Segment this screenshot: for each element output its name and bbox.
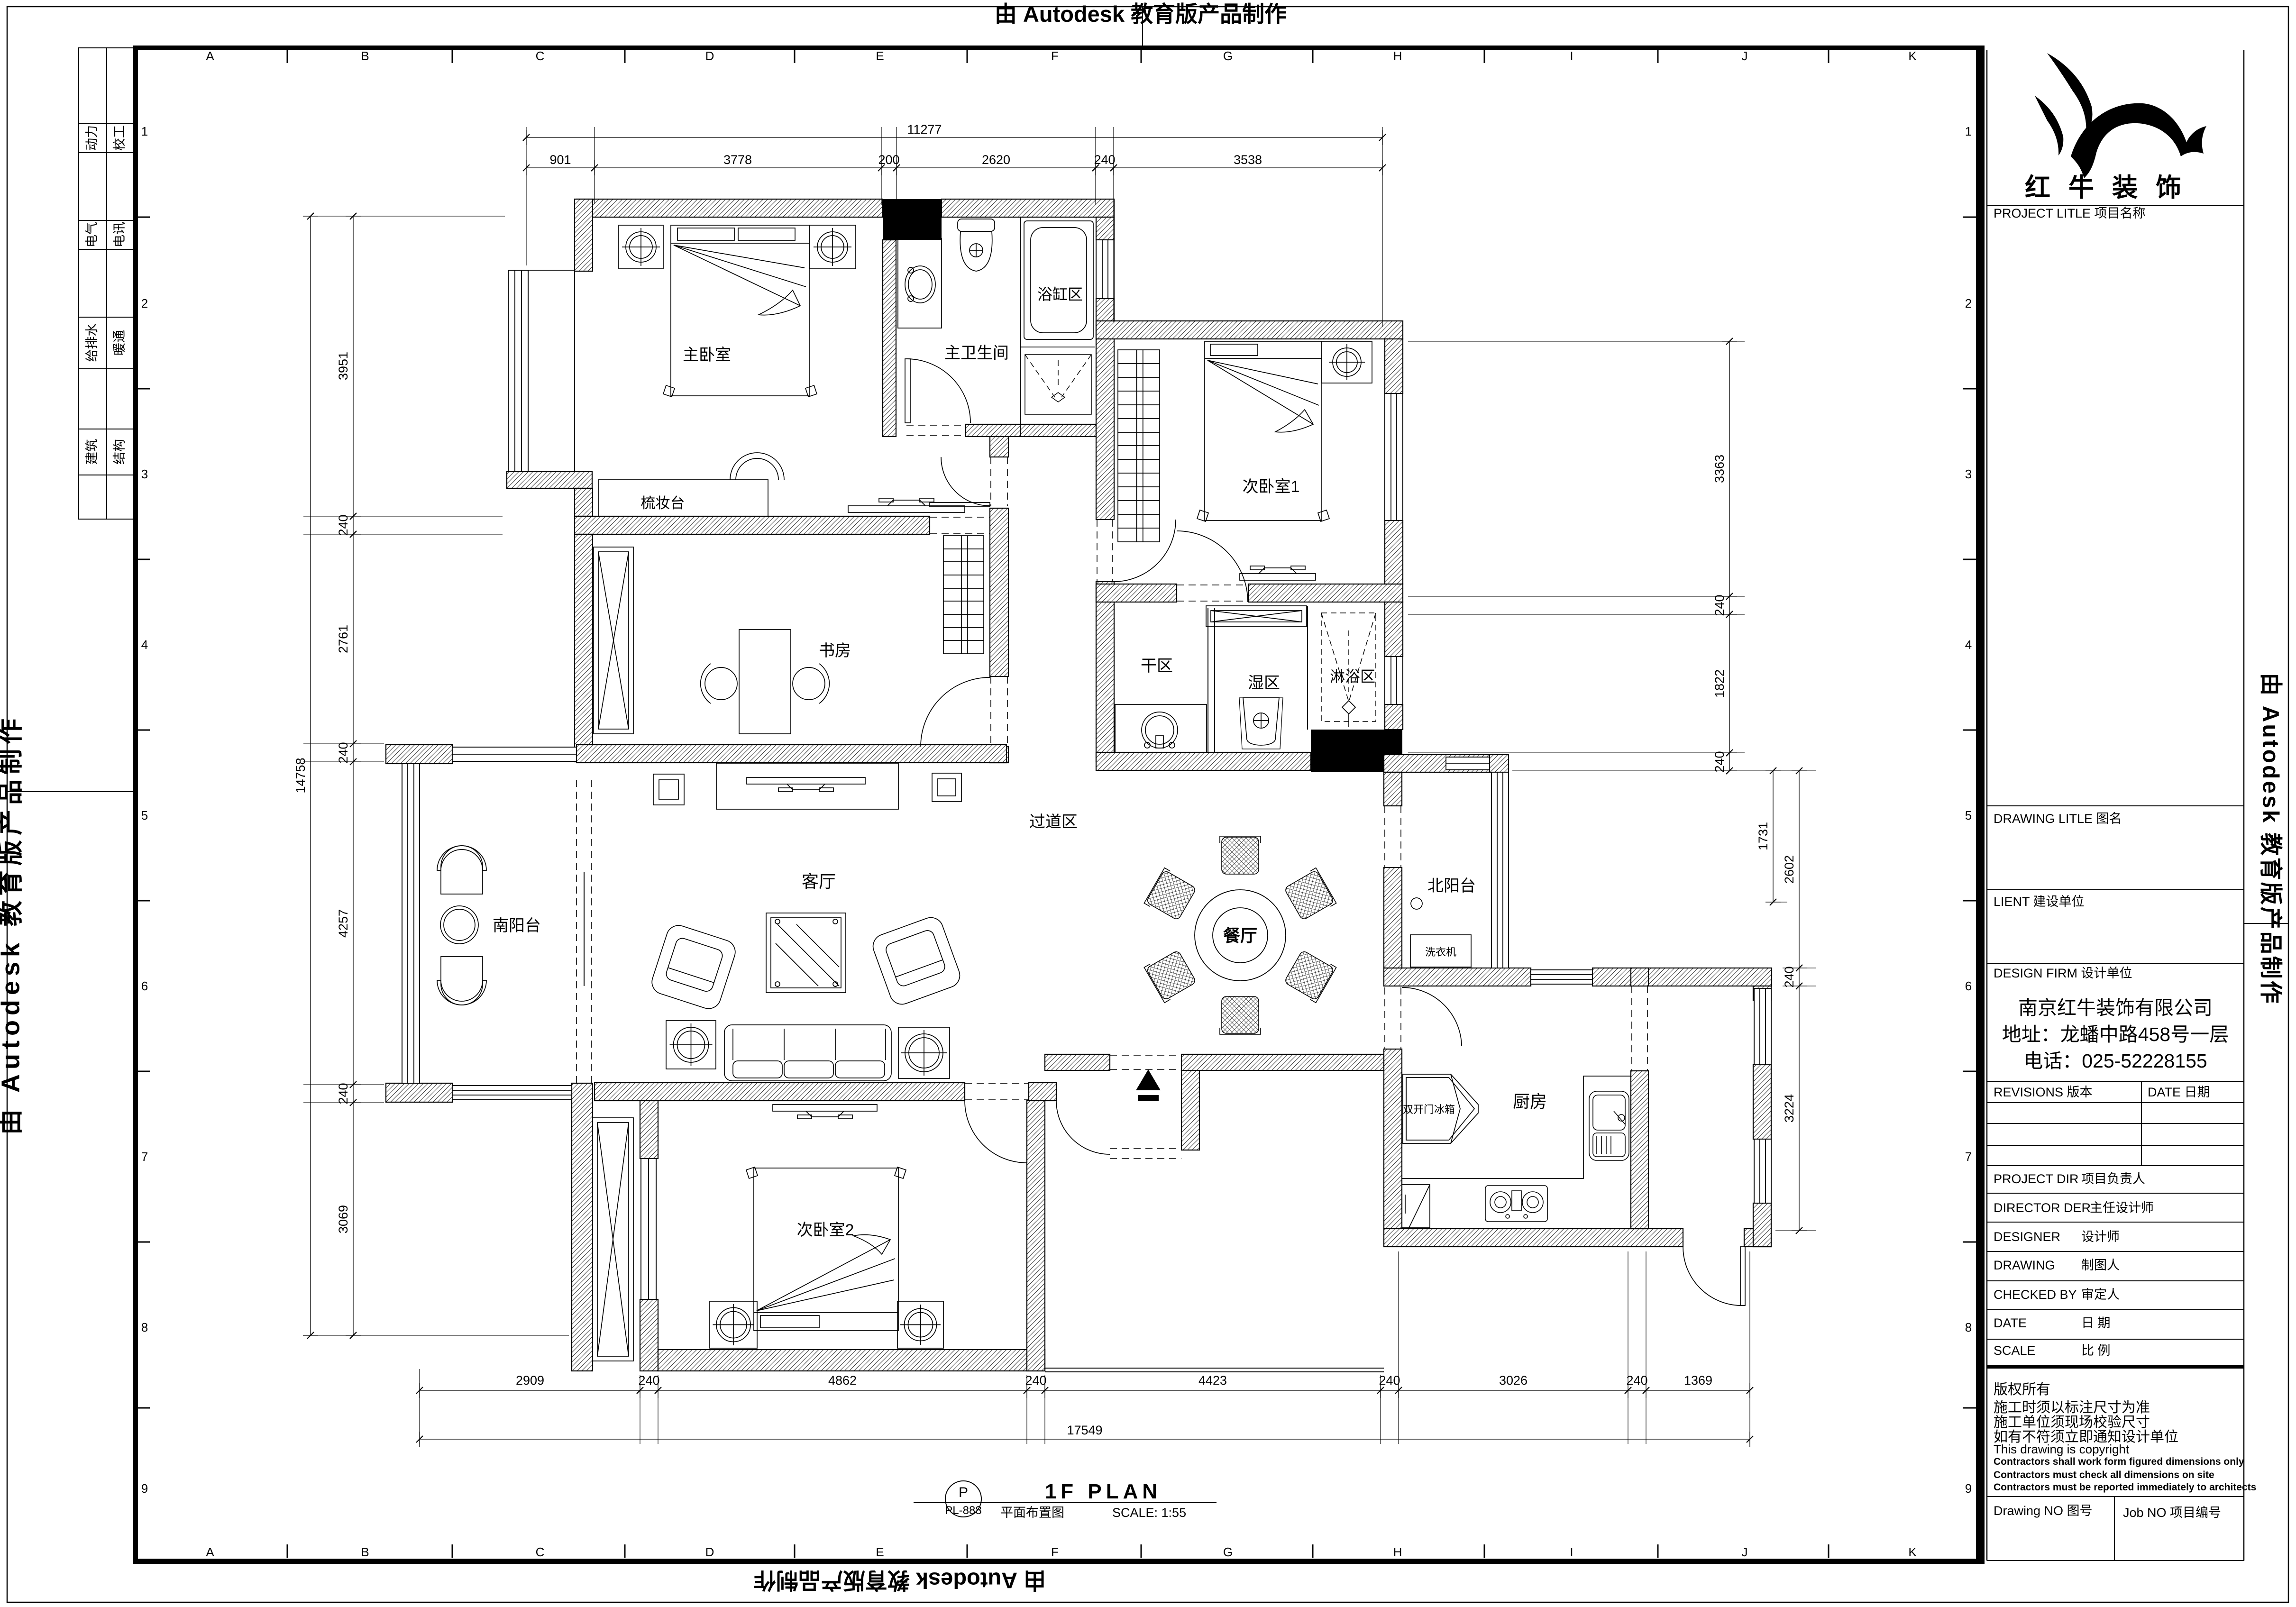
svg-text:淋浴区: 淋浴区 — [1330, 668, 1375, 685]
svg-text:F: F — [1051, 49, 1059, 63]
svg-text:结构: 结构 — [112, 439, 127, 465]
svg-text:DATE 日期: DATE 日期 — [2148, 1085, 2210, 1099]
svg-text:D: D — [705, 49, 714, 63]
svg-text:餐厅: 餐厅 — [1223, 926, 1257, 945]
svg-text:项目负责人: 项目负责人 — [2081, 1172, 2145, 1186]
svg-text:次卧室2: 次卧室2 — [797, 1221, 854, 1239]
svg-text:审定人: 审定人 — [2081, 1287, 2120, 1302]
svg-text:DESIGN FIRM 设计单位: DESIGN FIRM 设计单位 — [1994, 966, 2132, 980]
svg-text:浴缸区: 浴缸区 — [1037, 286, 1083, 303]
svg-text:5: 5 — [1965, 808, 1972, 822]
svg-text:Drawing NO 图号: Drawing NO 图号 — [1994, 1504, 2093, 1518]
svg-text:电讯: 电讯 — [112, 222, 127, 247]
svg-text:K: K — [1908, 49, 1917, 63]
svg-text:240: 240 — [336, 514, 350, 536]
svg-text:E: E — [876, 49, 884, 63]
svg-text:H: H — [1393, 1545, 1402, 1559]
svg-text:Contractors must check all dim: Contractors must check all dimensions on… — [1994, 1470, 2214, 1480]
svg-text:施工时须以标注尺寸为准: 施工时须以标注尺寸为准 — [1994, 1400, 2150, 1415]
svg-text:制图人: 制图人 — [2081, 1258, 2120, 1272]
svg-text:比 例: 比 例 — [2081, 1343, 2111, 1358]
svg-text:1: 1 — [141, 124, 148, 138]
svg-text:由 Autodesk 教育版产品制作: 由 Autodesk 教育版产品制作 — [2258, 673, 2283, 1005]
svg-text:4862: 4862 — [828, 1373, 857, 1388]
svg-text:主任设计师: 主任设计师 — [2090, 1201, 2154, 1215]
svg-text:240: 240 — [336, 1083, 350, 1104]
svg-text:G: G — [1223, 1545, 1233, 1559]
svg-text:Contractors must be reported i: Contractors must be reported immediately… — [1994, 1482, 2256, 1493]
svg-text:3538: 3538 — [1234, 153, 1262, 167]
svg-text:1: 1 — [1965, 124, 1972, 138]
svg-text:17549: 17549 — [1067, 1423, 1102, 1437]
svg-text:8: 8 — [1965, 1320, 1972, 1334]
svg-text:9: 9 — [1965, 1481, 1972, 1496]
svg-text:B: B — [361, 49, 369, 63]
svg-text:P: P — [959, 1485, 968, 1500]
svg-text:F: F — [1051, 1545, 1059, 1559]
svg-text:4423: 4423 — [1198, 1373, 1227, 1388]
svg-text:2: 2 — [141, 296, 148, 310]
svg-text:客厅: 客厅 — [802, 872, 836, 891]
svg-text:14758: 14758 — [293, 758, 308, 793]
svg-text:LIENT 建设单位: LIENT 建设单位 — [1994, 895, 2085, 909]
svg-text:4257: 4257 — [336, 909, 350, 938]
svg-text:PROJECT DIR: PROJECT DIR — [1994, 1172, 2079, 1186]
svg-text:REVISIONS 版本: REVISIONS 版本 — [1994, 1085, 2093, 1099]
svg-text:1822: 1822 — [1712, 669, 1727, 698]
svg-text:设计师: 设计师 — [2081, 1230, 2120, 1244]
svg-text:E: E — [876, 1545, 884, 1559]
svg-text:H: H — [1393, 49, 1402, 63]
svg-text:This drawing is copyright: This drawing is copyright — [1994, 1442, 2130, 1456]
svg-text:南阳台: 南阳台 — [493, 917, 541, 935]
svg-text:北阳台: 北阳台 — [1427, 877, 1476, 895]
svg-text:1F PLAN: 1F PLAN — [1045, 1480, 1162, 1503]
svg-text:240: 240 — [1025, 1373, 1046, 1388]
svg-text:6: 6 — [1965, 979, 1972, 993]
svg-text:Job NO 项目编号: Job NO 项目编号 — [2123, 1506, 2221, 1520]
svg-text:DRAWING LITLE 图名: DRAWING LITLE 图名 — [1994, 812, 2122, 826]
svg-text:PL-888: PL-888 — [945, 1504, 981, 1517]
svg-text:南京红牛装饰有限公司: 南京红牛装饰有限公司 — [2018, 997, 2213, 1019]
svg-text:主卫生间: 主卫生间 — [944, 344, 1009, 362]
svg-text:2620: 2620 — [982, 153, 1010, 167]
svg-text:校工: 校工 — [112, 125, 127, 151]
svg-text:8: 8 — [141, 1320, 148, 1334]
svg-text:给排水: 给排水 — [85, 324, 99, 362]
svg-text:2602: 2602 — [1782, 855, 1796, 884]
svg-text:2909: 2909 — [516, 1373, 544, 1388]
svg-text:G: G — [1223, 49, 1233, 63]
svg-text:7: 7 — [141, 1150, 148, 1164]
svg-text:3778: 3778 — [723, 153, 752, 167]
svg-text:厨房: 厨房 — [1513, 1092, 1547, 1111]
svg-text:2: 2 — [1965, 296, 1972, 310]
svg-text:平面布置图: 平面布置图 — [1000, 1506, 1064, 1520]
svg-text:书房: 书房 — [819, 642, 851, 660]
svg-text:J: J — [1742, 49, 1748, 63]
svg-text:3069: 3069 — [336, 1205, 350, 1233]
svg-text:D: D — [705, 1545, 714, 1559]
svg-text:240: 240 — [1712, 751, 1727, 772]
svg-text:3224: 3224 — [1782, 1094, 1796, 1123]
svg-text:4: 4 — [1965, 638, 1972, 652]
svg-text:过道区: 过道区 — [1029, 813, 1078, 831]
svg-text:动力: 动力 — [85, 125, 99, 151]
svg-text:双开门冰箱: 双开门冰箱 — [1403, 1104, 1455, 1115]
svg-text:240: 240 — [1094, 153, 1115, 167]
svg-text:日 期: 日 期 — [2081, 1316, 2111, 1330]
svg-text:1731: 1731 — [1756, 822, 1770, 850]
svg-text:1369: 1369 — [1684, 1373, 1712, 1388]
svg-text:暖通: 暖通 — [112, 330, 127, 356]
svg-text:版权所有: 版权所有 — [1994, 1382, 2050, 1397]
svg-text:C: C — [536, 49, 545, 63]
svg-text:11277: 11277 — [907, 122, 942, 137]
svg-text:C: C — [536, 1545, 545, 1559]
svg-text:240: 240 — [638, 1373, 659, 1388]
svg-text:电气: 电气 — [85, 222, 99, 247]
svg-text:由 Autodesk 教育版产品制作: 由 Autodesk 教育版产品制作 — [0, 714, 25, 1135]
svg-text:由 Autodesk 教育版产品制作: 由 Autodesk 教育版产品制作 — [754, 1568, 1046, 1593]
svg-text:3363: 3363 — [1712, 455, 1727, 483]
svg-text:K: K — [1908, 1545, 1917, 1559]
svg-text:J: J — [1742, 1545, 1748, 1559]
svg-text:电话：025-52228155: 电话：025-52228155 — [2023, 1050, 2207, 1072]
svg-text:901: 901 — [549, 153, 571, 167]
svg-text:由 Autodesk 教育版产品制作: 由 Autodesk 教育版产品制作 — [995, 1, 1287, 27]
svg-text:Contractors shall work form fi: Contractors shall work form figured dime… — [1994, 1456, 2244, 1467]
svg-text:梳妆台: 梳妆台 — [641, 495, 685, 511]
svg-text:A: A — [206, 49, 214, 63]
svg-text:湿区: 湿区 — [1248, 674, 1280, 692]
svg-text:PROJECT LITLE 项目名称: PROJECT LITLE 项目名称 — [1994, 206, 2146, 220]
svg-text:3026: 3026 — [1499, 1373, 1528, 1388]
svg-text:4: 4 — [141, 638, 148, 652]
svg-text:主卧室: 主卧室 — [683, 346, 731, 364]
svg-text:240: 240 — [1712, 594, 1727, 616]
svg-text:红牛装饰: 红牛装饰 — [2025, 173, 2199, 202]
svg-text:SCALE: 1:55: SCALE: 1:55 — [1112, 1506, 1186, 1520]
svg-text:I: I — [1570, 1545, 1573, 1559]
svg-text:建筑: 建筑 — [85, 439, 99, 465]
svg-text:DESIGNER: DESIGNER — [1994, 1230, 2060, 1244]
svg-text:施工单位须现场校验尺寸: 施工单位须现场校验尺寸 — [1994, 1415, 2150, 1430]
svg-text:干区: 干区 — [1141, 657, 1173, 675]
svg-text:地址：龙蟠中路458号一层: 地址：龙蟠中路458号一层 — [2002, 1023, 2229, 1045]
svg-text:DIRECTOR DER: DIRECTOR DER — [1994, 1201, 2091, 1215]
svg-text:B: B — [361, 1545, 369, 1559]
svg-text:3951: 3951 — [336, 352, 350, 380]
svg-text:240: 240 — [1379, 1373, 1400, 1388]
svg-text:2761: 2761 — [336, 625, 350, 653]
svg-text:240: 240 — [1626, 1373, 1647, 1388]
svg-text:I: I — [1570, 49, 1573, 63]
svg-text:3: 3 — [1965, 467, 1972, 481]
svg-text:CHECKED BY: CHECKED BY — [1994, 1287, 2077, 1302]
svg-text:洗衣机: 洗衣机 — [1425, 946, 1456, 958]
svg-text:240: 240 — [1782, 966, 1796, 987]
svg-text:次卧室1: 次卧室1 — [1243, 478, 1300, 496]
svg-text:3: 3 — [141, 467, 148, 481]
svg-text:7: 7 — [1965, 1150, 1972, 1164]
svg-text:6: 6 — [141, 979, 148, 993]
svg-text:SCALE: SCALE — [1994, 1343, 2036, 1358]
svg-text:A: A — [206, 1545, 214, 1559]
svg-text:5: 5 — [141, 808, 148, 822]
svg-text:240: 240 — [336, 742, 350, 763]
svg-text:DATE: DATE — [1994, 1316, 2027, 1330]
svg-text:9: 9 — [141, 1481, 148, 1496]
svg-text:DRAWING: DRAWING — [1994, 1258, 2055, 1272]
